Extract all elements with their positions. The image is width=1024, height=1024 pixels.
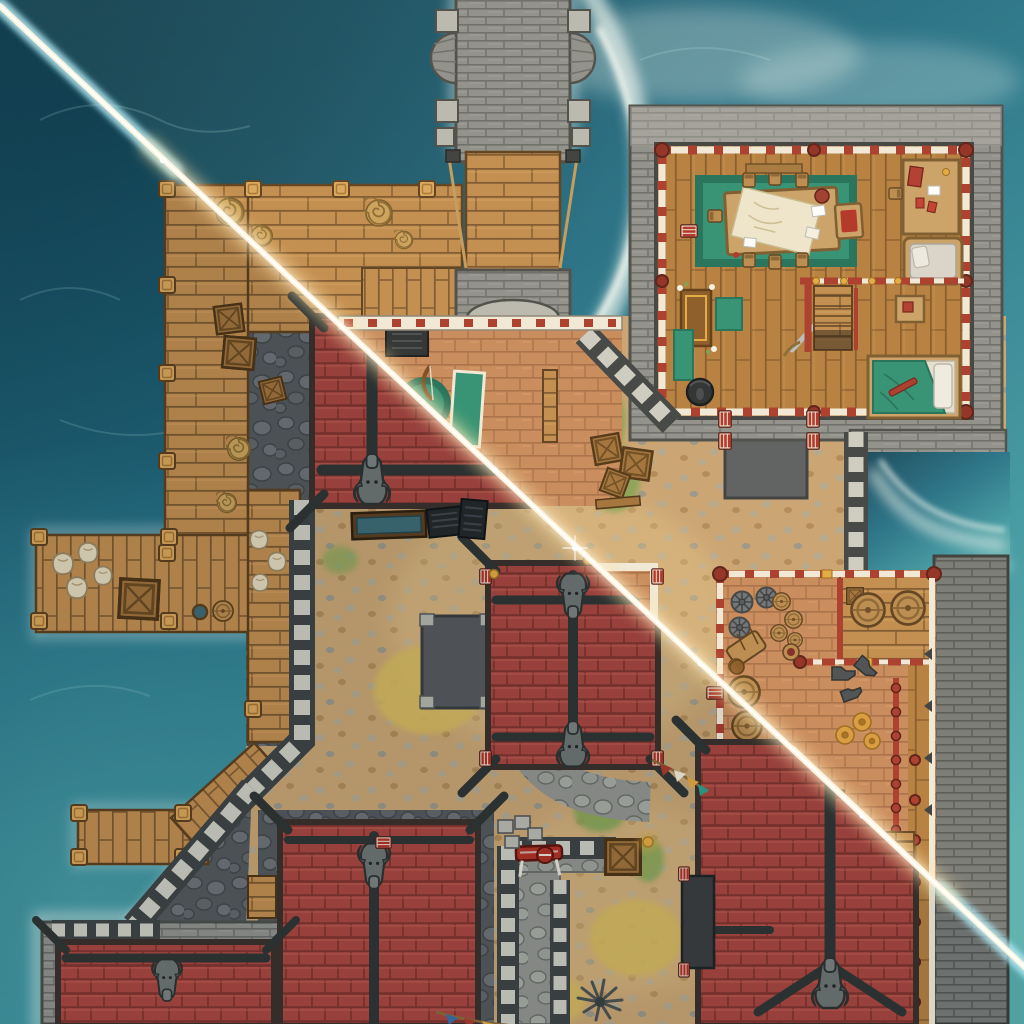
battle-map-svg	[0, 0, 1024, 1024]
battle-map-canvas[interactable]	[0, 0, 1024, 1024]
